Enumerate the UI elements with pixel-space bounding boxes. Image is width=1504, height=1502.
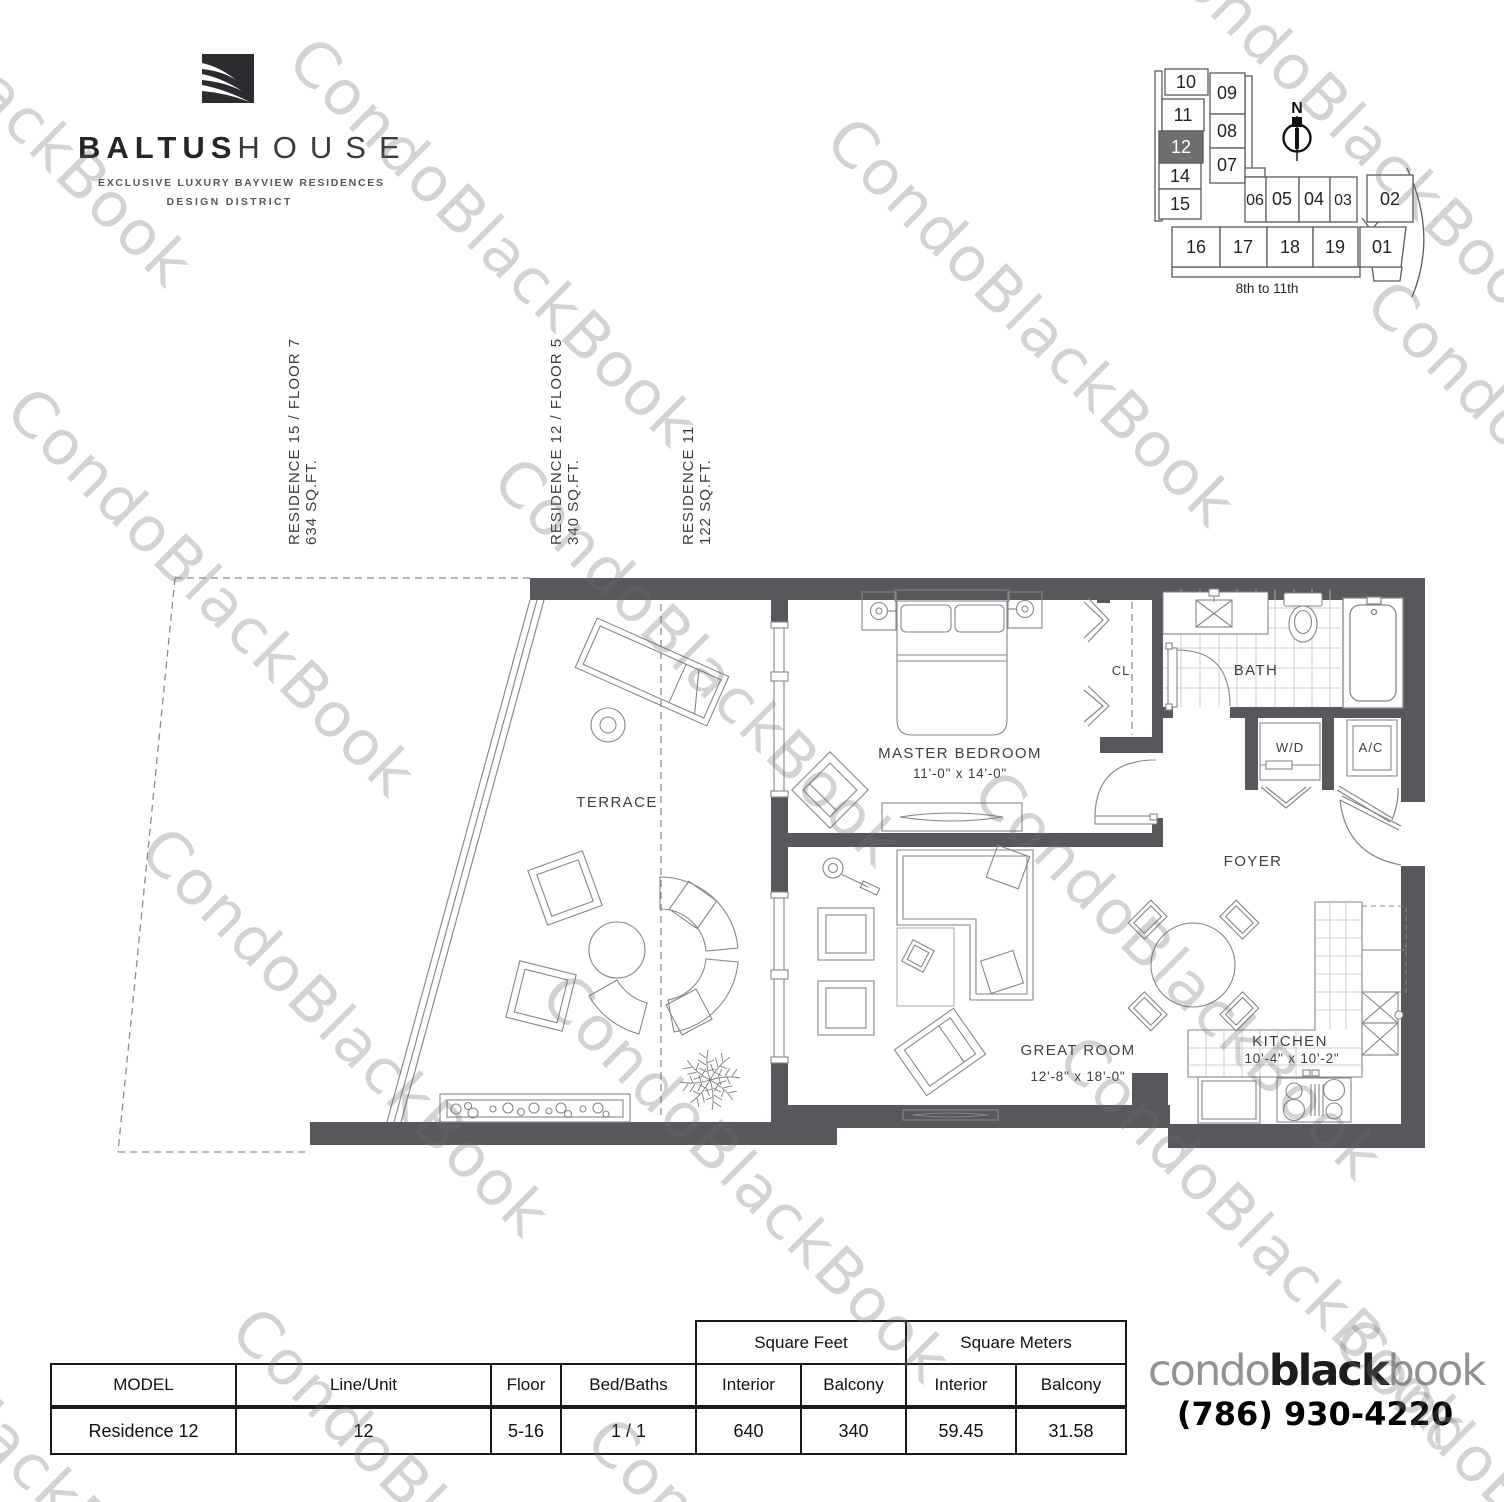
ac-door — [1337, 786, 1398, 822]
kitchen-label: KITCHEN — [1252, 1033, 1328, 1050]
col-header-bed-baths: Bed/Baths — [561, 1364, 696, 1407]
svg-text:N: N — [1291, 100, 1303, 117]
terrace-railing — [387, 600, 544, 1122]
keyplan-unit-08: 08 — [1210, 114, 1245, 148]
kitchen-dims: 10'-4" x 10'-2" — [1244, 1051, 1339, 1066]
lounge-chair — [894, 1008, 985, 1095]
col-header-model: MODEL — [51, 1364, 236, 1407]
svg-text:05: 05 — [1272, 189, 1292, 209]
col-header-floor: Floor — [491, 1364, 561, 1407]
brand-condo: condo — [1148, 1346, 1269, 1396]
keyplan-unit-04: 04 — [1299, 177, 1330, 222]
keyplan-unit-01: 01 — [1360, 227, 1406, 267]
residence-15-area: 634 SQ.FT. — [303, 338, 320, 545]
residence-11-name: RESIDENCE 11 — [680, 426, 697, 545]
armchair — [818, 981, 874, 1035]
col-header-line-unit: Line/Unit — [236, 1364, 491, 1407]
great-room-label: GREAT ROOM — [1020, 1042, 1135, 1059]
svg-text:18: 18 — [1280, 237, 1300, 257]
closet-bifold-doors — [1084, 598, 1109, 726]
keyplan-unit-06: 06 — [1245, 177, 1266, 222]
keyplan-unit-19: 19 — [1313, 227, 1358, 267]
keyplan-units: 10 11 12 14 15 09 08 07 — [1159, 69, 1413, 267]
bedroom-chair — [792, 752, 868, 828]
terrace-chair — [506, 961, 576, 1031]
residence-15-name: RESIDENCE 15 / FLOOR 7 — [286, 338, 303, 545]
keyplan-unit-03: 03 — [1330, 177, 1357, 222]
cell-floor: 5-16 — [491, 1407, 561, 1454]
keyplan-unit-09: 09 — [1210, 73, 1245, 114]
keyplan-unit-16: 16 — [1172, 227, 1220, 267]
compass-north-icon: N — [1284, 100, 1311, 161]
cell-bed-baths: 1 / 1 — [561, 1407, 696, 1454]
floorplan: BATH CL — [100, 560, 1450, 1185]
svg-text:17: 17 — [1233, 237, 1253, 257]
dashed-boundaries — [118, 578, 1132, 1152]
svg-text:08: 08 — [1217, 121, 1237, 141]
group-header-square-feet: Square Feet — [696, 1321, 906, 1364]
keyplan-unit-14: 14 — [1159, 163, 1201, 189]
bed — [895, 590, 1009, 735]
master-bedroom-furniture — [792, 590, 1042, 831]
bath-vanity-sink — [1163, 589, 1268, 634]
svg-text:16: 16 — [1186, 237, 1206, 257]
planter-box — [440, 1094, 630, 1122]
svg-text:07: 07 — [1217, 155, 1237, 175]
residence-12-name: RESIDENCE 12 / FLOOR 5 — [548, 338, 565, 545]
chaise-lounge — [575, 618, 729, 726]
svg-text:09: 09 — [1217, 83, 1237, 103]
watermark-text: CondoBlackBook — [274, 23, 713, 462]
baltus-house-wordmark: BALTUSHOUSE — [78, 130, 413, 166]
residence-11-area: 122 SQ.FT. — [697, 426, 714, 545]
great-room-dims: 12'-8" x 18'-0" — [1030, 1069, 1125, 1084]
col-header-sqm-balcony: Balcony — [1016, 1364, 1126, 1407]
closet-label: CL — [1112, 663, 1131, 678]
terrace-label: TERRACE — [576, 794, 657, 811]
plant — [680, 1050, 740, 1110]
residence-12-area: 340 SQ.FT. — [565, 338, 582, 545]
svg-text:01: 01 — [1372, 237, 1392, 257]
sectional-sofa — [897, 845, 1033, 1000]
bath-area: BATH — [1163, 589, 1403, 708]
bath-door — [1166, 643, 1230, 710]
svg-text:10: 10 — [1176, 72, 1196, 92]
floor-lamp — [823, 858, 880, 895]
brand-tagline: EXCLUSIVE LUXURY BAYVIEW RESIDENCES — [98, 177, 385, 189]
great-room-furniture — [818, 845, 1033, 1120]
keyplan-unit-18: 18 — [1267, 227, 1313, 267]
dining-table — [1128, 900, 1259, 1031]
svg-text:03: 03 — [1334, 192, 1352, 209]
toilet — [1284, 593, 1322, 642]
table-blank-region — [51, 1321, 696, 1364]
keyplan-unit-10: 10 — [1165, 69, 1208, 95]
col-header-sqft-balcony: Balcony — [801, 1364, 906, 1407]
foyer-label: FOYER — [1224, 853, 1283, 870]
residence-label-15: RESIDENCE 15 / FLOOR 7 634 SQ.FT. — [286, 338, 320, 545]
svg-text:04: 04 — [1304, 189, 1324, 209]
specs-table: Square Feet Square Meters MODEL Line/Uni… — [50, 1320, 1127, 1455]
refrigerator — [1362, 906, 1406, 992]
cell-line-unit: 12 — [236, 1407, 491, 1454]
dresser — [882, 803, 1022, 831]
ac-label: A/C — [1359, 740, 1384, 755]
col-header-sqm-interior: Interior — [906, 1364, 1016, 1407]
building-keyplan: 10 11 12 14 15 09 08 07 — [1150, 55, 1440, 305]
cell-model: Residence 12 — [51, 1407, 236, 1454]
wordmark-house: HOUSE — [237, 130, 412, 165]
svg-text:19: 19 — [1325, 237, 1345, 257]
condoblackbook-footer: condoblackbook (786) 930-4220 — [1148, 1348, 1482, 1432]
washer-dryer-label: W/D — [1276, 740, 1304, 755]
keyplan-unit-12-highlighted: 12 — [1159, 131, 1203, 163]
col-header-sqft-interior: Interior — [696, 1364, 801, 1407]
cooktop — [1277, 1078, 1351, 1122]
terrace-furniture — [440, 618, 740, 1122]
svg-text:06: 06 — [1246, 192, 1264, 209]
keyplan-unit-11: 11 — [1162, 99, 1204, 131]
cell-sqm-balcony: 31.58 — [1016, 1407, 1126, 1454]
keyplan-unit-17: 17 — [1220, 227, 1267, 267]
kitchen-sink — [1362, 992, 1403, 1055]
svg-text:15: 15 — [1170, 194, 1190, 214]
washer-dryer-door — [1261, 787, 1311, 808]
brand-book: book — [1387, 1346, 1484, 1396]
cell-sqft-interior: 640 — [696, 1407, 801, 1454]
baltus-house-logo-icon — [202, 54, 254, 103]
brand-district: DESIGN DISTRICT — [98, 196, 361, 208]
group-header-square-meters: Square Meters — [906, 1321, 1126, 1364]
residence-label-11: RESIDENCE 11 122 SQ.FT. — [680, 426, 714, 545]
table-row-residence-12: Residence 12 12 5-16 1 / 1 640 340 59.45… — [51, 1407, 1126, 1454]
armchair — [818, 908, 874, 960]
bedroom-door — [1095, 760, 1157, 824]
svg-text:02: 02 — [1380, 189, 1400, 209]
terrace-chair — [528, 851, 602, 925]
keyplan-unit-15: 15 — [1159, 189, 1201, 219]
entry-door — [1340, 796, 1401, 865]
terrace-side-table — [591, 708, 625, 742]
cell-sqm-interior: 59.45 — [906, 1407, 1016, 1454]
cell-sqft-balcony: 340 — [801, 1407, 906, 1454]
terrace-coffee-table — [589, 922, 645, 978]
bathtub — [1343, 597, 1403, 708]
curved-sofa — [589, 877, 738, 1035]
svg-text:11: 11 — [1174, 105, 1193, 125]
bath-label: BATH — [1234, 662, 1279, 679]
brand-black: black — [1269, 1346, 1388, 1396]
wordmark-baltus: BALTUS — [78, 130, 237, 165]
svg-text:12: 12 — [1171, 137, 1191, 157]
keyplan-floors-label: 8th to 11th — [1236, 281, 1299, 296]
condoblackbook-logo: condoblackbook — [1148, 1348, 1482, 1394]
keyplan-unit-07: 07 — [1210, 148, 1245, 183]
floorplan-page: BALTUSHOUSE EXCLUSIVE LUXURY BAYVIEW RES… — [0, 0, 1504, 1502]
rug-coffee-table — [897, 928, 954, 1006]
svg-text:14: 14 — [1170, 166, 1190, 186]
phone-number: (786) 930-4220 — [1148, 1396, 1482, 1432]
residence-label-12: RESIDENCE 12 / FLOOR 5 340 SQ.FT. — [548, 338, 582, 545]
keyplan-unit-05: 05 — [1266, 177, 1299, 222]
master-bedroom-dims: 11'-0" x 14'-0" — [913, 766, 1007, 781]
master-bedroom-label: MASTER BEDROOM — [878, 745, 1042, 762]
keyplan-unit-02: 02 — [1367, 175, 1413, 222]
